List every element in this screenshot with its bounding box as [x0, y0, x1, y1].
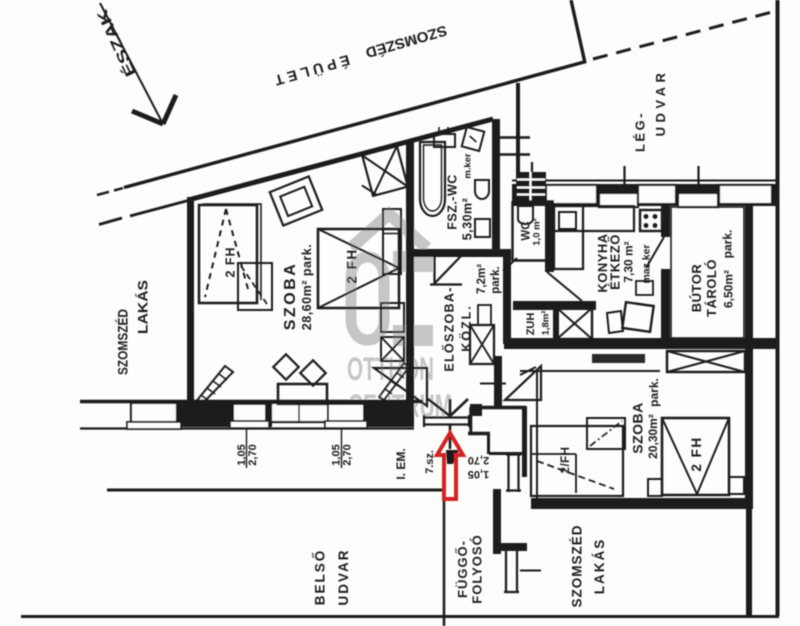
svg-text:FSZ.-WC: FSZ.-WC [446, 174, 460, 230]
svg-text:KÖZL.: KÖZL. [459, 304, 474, 352]
svg-text:ELŐSZOBA-: ELŐSZOBA- [442, 286, 457, 371]
svg-text:2,70: 2,70 [468, 454, 489, 466]
svg-text:SZOBA: SZOBA [630, 402, 646, 454]
svg-text:TÁROLÓ: TÁROLÓ [704, 259, 719, 317]
svg-text:LAKÁS: LAKÁS [592, 538, 607, 595]
svg-text:park.: park. [647, 378, 661, 407]
svg-text:m.ker: m.ker [463, 153, 474, 179]
svg-text:2/FH: 2/FH [560, 447, 572, 474]
svg-text:ZUH: ZUH [525, 313, 537, 336]
svg-text:2 FH: 2 FH [224, 246, 238, 277]
svg-text:7.sz.: 7.sz. [424, 450, 436, 474]
svg-text:BELSŐ: BELSŐ [313, 549, 328, 606]
svg-text:7,2m²: 7,2m² [476, 264, 488, 294]
svg-text:maz.ker: maz.ker [641, 244, 653, 283]
svg-text:I. EM.: I. EM. [394, 448, 408, 479]
svg-text:park.: park. [721, 230, 735, 259]
svg-text:FOLYOSÓ: FOLYOSÓ [470, 534, 485, 603]
svg-text:LAKÁS: LAKÁS [135, 280, 151, 334]
svg-text:park.: park. [490, 266, 502, 294]
svg-text:2,70: 2,70 [342, 444, 354, 465]
svg-text:ÉTKEZŐ: ÉTKEZŐ [608, 234, 623, 290]
svg-text:2 FH: 2 FH [345, 248, 360, 283]
svg-text:1,8m²: 1,8m² [541, 311, 552, 336]
svg-text:BÚTOR: BÚTOR [689, 264, 704, 313]
svg-text:UDVAR: UDVAR [653, 69, 668, 137]
svg-text:2,70: 2,70 [247, 444, 259, 465]
svg-text:UDVAR: UDVAR [336, 549, 351, 606]
svg-text:LÉG-: LÉG- [633, 111, 648, 152]
svg-text:28,60m² park.: 28,60m² park. [300, 244, 314, 330]
svg-text:SZOMSZÉD: SZOMSZÉD [115, 309, 131, 375]
svg-text:1,0 m²: 1,0 m² [532, 218, 543, 245]
svg-text:6,50m²: 6,50m² [722, 270, 736, 308]
svg-text:SZOMSZÉD: SZOMSZÉD [570, 524, 585, 607]
svg-text:FÜGGŐ-: FÜGGŐ- [455, 540, 470, 598]
svg-text:2 FH: 2 FH [689, 436, 704, 471]
svg-text:1,05: 1,05 [468, 468, 489, 480]
svg-text:5,30m²: 5,30m² [461, 198, 475, 241]
svg-text:SZOBA: SZOBA [282, 262, 299, 331]
svg-text:7,30 m²: 7,30 m² [622, 241, 636, 282]
svg-text:20,30m²: 20,30m² [646, 414, 660, 459]
